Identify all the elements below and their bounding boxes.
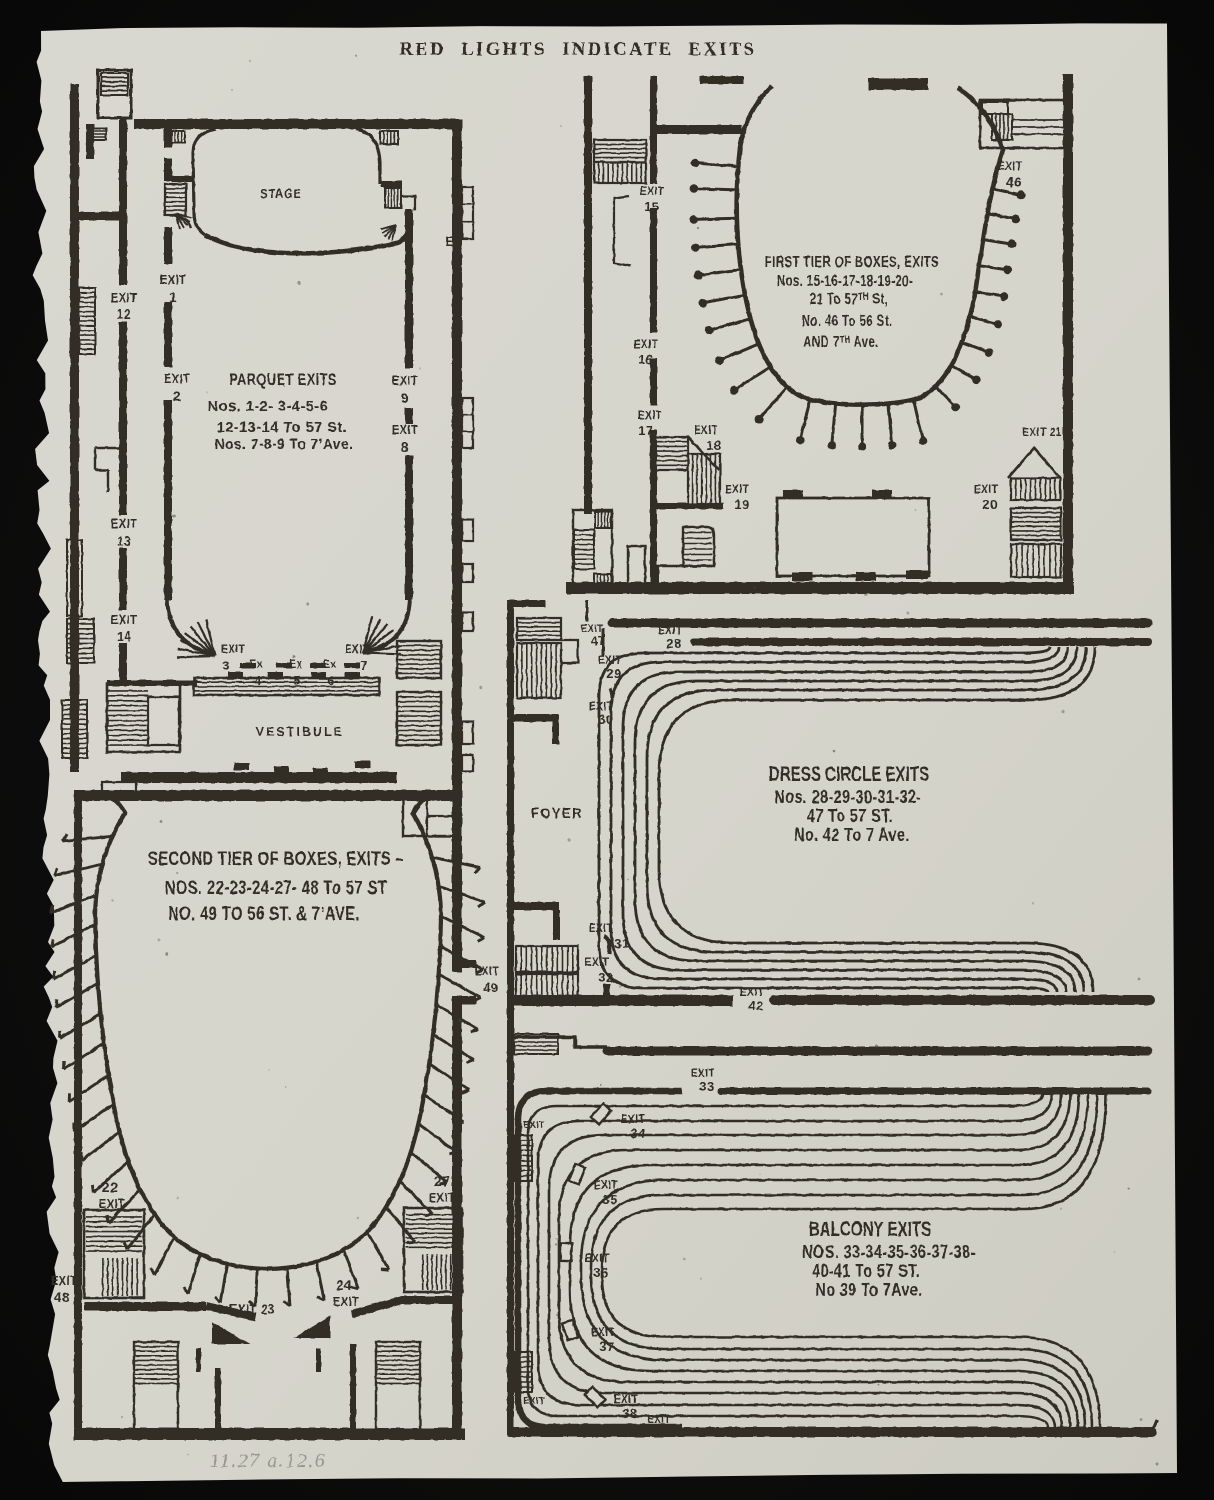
svg-text:46: 46	[1006, 175, 1022, 190]
svg-text:EXIT: EXIT	[585, 956, 609, 969]
svg-text:47: 47	[591, 634, 605, 648]
svg-text:EXIT: EXIT	[429, 1190, 455, 1205]
svg-text:EXIT: EXIT	[594, 1179, 618, 1192]
svg-text:37: 37	[599, 1339, 614, 1354]
svg-text:1: 1	[169, 289, 177, 305]
svg-text:12: 12	[117, 306, 131, 322]
svg-text:No. 46 To 56 St.: No. 46 To 56 St.	[802, 311, 893, 329]
svg-text:18: 18	[706, 438, 721, 453]
svg-text:EXIT: EXIT	[392, 422, 418, 437]
svg-text:BALCONY EXITS: BALCONY EXITS	[809, 1216, 931, 1240]
svg-text:33: 33	[699, 1079, 714, 1094]
svg-text:EXIT: EXIT	[111, 290, 137, 305]
svg-text:39: 39	[656, 1425, 671, 1439]
svg-text:EXIT: EXIT	[523, 1119, 545, 1131]
svg-text:NO. 49 TO 56 ST. & 7ʼAVE.: NO. 49 TO 56 ST. & 7ʼAVE.	[168, 903, 360, 924]
svg-text:DRESS CIRCLE EXITS: DRESS CIRCLE EXITS	[769, 761, 929, 785]
svg-text:PARQUET EXITS: PARQUET EXITS	[229, 372, 337, 390]
svg-text:EXIT: EXIT	[392, 373, 418, 388]
svg-text:30: 30	[598, 712, 613, 727]
svg-text:EXIT: EXIT	[221, 643, 245, 656]
svg-text:27: 27	[434, 1173, 451, 1189]
svg-text:EXIT 21: EXIT 21	[1022, 426, 1062, 439]
svg-text:42: 42	[748, 998, 763, 1013]
svg-text:No. 42 To 7 Ave.: No. 42 To 7 Ave.	[794, 824, 909, 845]
svg-text:Nos. 15-16-17-18-19-20-: Nos. 15-16-17-18-19-20-	[777, 271, 913, 289]
svg-text:17: 17	[638, 423, 653, 438]
svg-text:FOYER: FOYER	[531, 805, 583, 821]
svg-text:EXIT: EXIT	[591, 1326, 615, 1339]
svg-text:E: E	[445, 234, 455, 249]
svg-text:32: 32	[598, 970, 613, 985]
svg-text:SECOND TIER OF BOXES, EXITS: SECOND TIER OF BOXES, EXITS –	[148, 848, 404, 869]
svg-text:31: 31	[614, 936, 629, 951]
svg-text:EXIT: EXIT	[694, 424, 718, 437]
svg-text:22: 22	[102, 1179, 119, 1195]
svg-text:EXIT: EXIT	[725, 483, 749, 496]
svg-text:48: 48	[54, 1289, 71, 1305]
svg-text:EXIT: EXIT	[640, 185, 664, 198]
svg-text:STAGE: STAGE	[260, 186, 301, 201]
svg-text:EXIT: EXIT	[160, 272, 186, 287]
svg-text:11.27 a.12.6: 11.27 a.12.6	[210, 1450, 327, 1472]
svg-text:19: 19	[734, 497, 749, 512]
svg-text:EXIT: EXIT	[638, 409, 662, 422]
svg-text:Nos. 1-2- 3-4-5-6: Nos. 1-2- 3-4-5-6	[208, 399, 329, 415]
svg-text:9: 9	[401, 390, 409, 406]
svg-text:21 To 57ᵀᴴ St,: 21 To 57ᵀᴴ St,	[810, 289, 888, 307]
svg-text:EXIT: EXIT	[51, 1273, 77, 1288]
svg-text:No 39 To 7Ave.: No 39 To 7Ave.	[815, 1279, 922, 1300]
svg-text:36: 36	[593, 1265, 608, 1280]
svg-text:EXIT: EXIT	[621, 1113, 645, 1126]
svg-text:7: 7	[360, 658, 368, 673]
svg-text:12-13-14 To 57 St.: 12-13-14 To 57 St.	[217, 420, 347, 436]
svg-text:AND 7ᵀᴴ Ave.: AND 7ᵀᴴ Ave.	[803, 332, 879, 350]
svg-text:3: 3	[222, 658, 230, 673]
svg-text:34: 34	[630, 1126, 646, 1141]
svg-text:FIRST TIER OF BOXES, EXITS: FIRST TIER OF BOXES, EXITS	[765, 252, 939, 270]
svg-text:8: 8	[401, 439, 409, 455]
svg-text:EXIT: EXIT	[614, 1393, 638, 1406]
svg-text:2: 2	[173, 388, 181, 404]
svg-text:EXIT: EXIT	[589, 922, 613, 935]
svg-text:35: 35	[602, 1192, 617, 1207]
svg-text:EXIT: EXIT	[585, 1252, 609, 1265]
svg-text:Nos. 7-8-9 To 7ʼAve.: Nos. 7-8-9 To 7ʼAve.	[215, 437, 354, 454]
svg-text:15: 15	[644, 199, 659, 214]
svg-text:16: 16	[638, 352, 653, 367]
svg-text:EXIT: EXIT	[333, 1294, 359, 1309]
svg-text:13: 13	[117, 533, 131, 549]
svg-text:14: 14	[117, 628, 131, 644]
svg-text:EXIT: EXIT	[974, 483, 998, 496]
svg-text:24: 24	[336, 1277, 353, 1293]
svg-text:28: 28	[666, 636, 681, 651]
svg-text:38: 38	[622, 1406, 637, 1421]
svg-text:EXIT: EXIT	[111, 612, 137, 627]
svg-text:49: 49	[483, 980, 498, 995]
svg-text:EXIT: EXIT	[634, 338, 658, 351]
svg-text:EXIT: EXIT	[345, 643, 369, 656]
svg-text:20: 20	[982, 497, 997, 512]
svg-text:EXIT: EXIT	[111, 516, 137, 531]
svg-text:29: 29	[606, 666, 621, 681]
svg-text:RED LIGHTS INDICATE EXITS: RED LIGHTS INDICATE EXITS	[399, 40, 756, 60]
svg-text:EXIT: EXIT	[164, 371, 190, 386]
svg-text:NOS. 22-23-24-27- 48 To 57 ST: NOS. 22-23-24-27- 48 To 57 ST	[165, 877, 388, 898]
svg-text:VESTIBULE: VESTIBULE	[256, 725, 344, 739]
